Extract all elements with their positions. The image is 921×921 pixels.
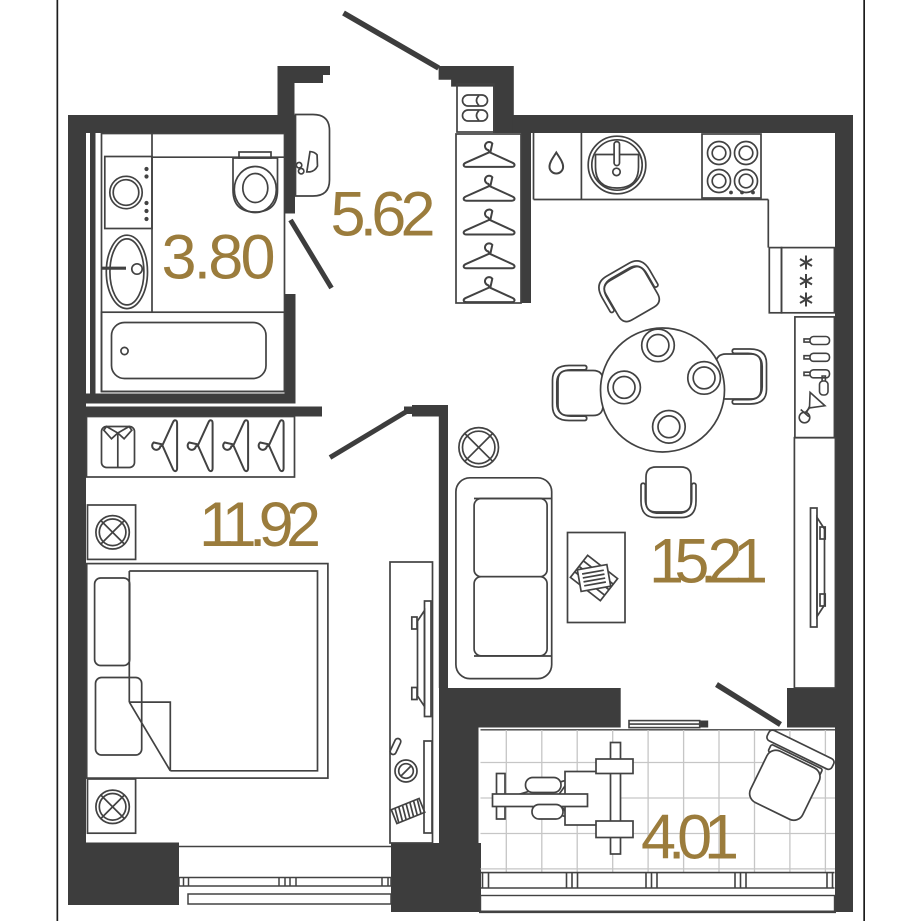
svg-text:15.21: 15.21 (649, 527, 768, 597)
svg-text:4.01: 4.01 (641, 803, 739, 873)
svg-text:11.92: 11.92 (199, 490, 321, 560)
svg-text:5.62: 5.62 (331, 180, 436, 250)
svg-text:3.80: 3.80 (162, 223, 276, 293)
